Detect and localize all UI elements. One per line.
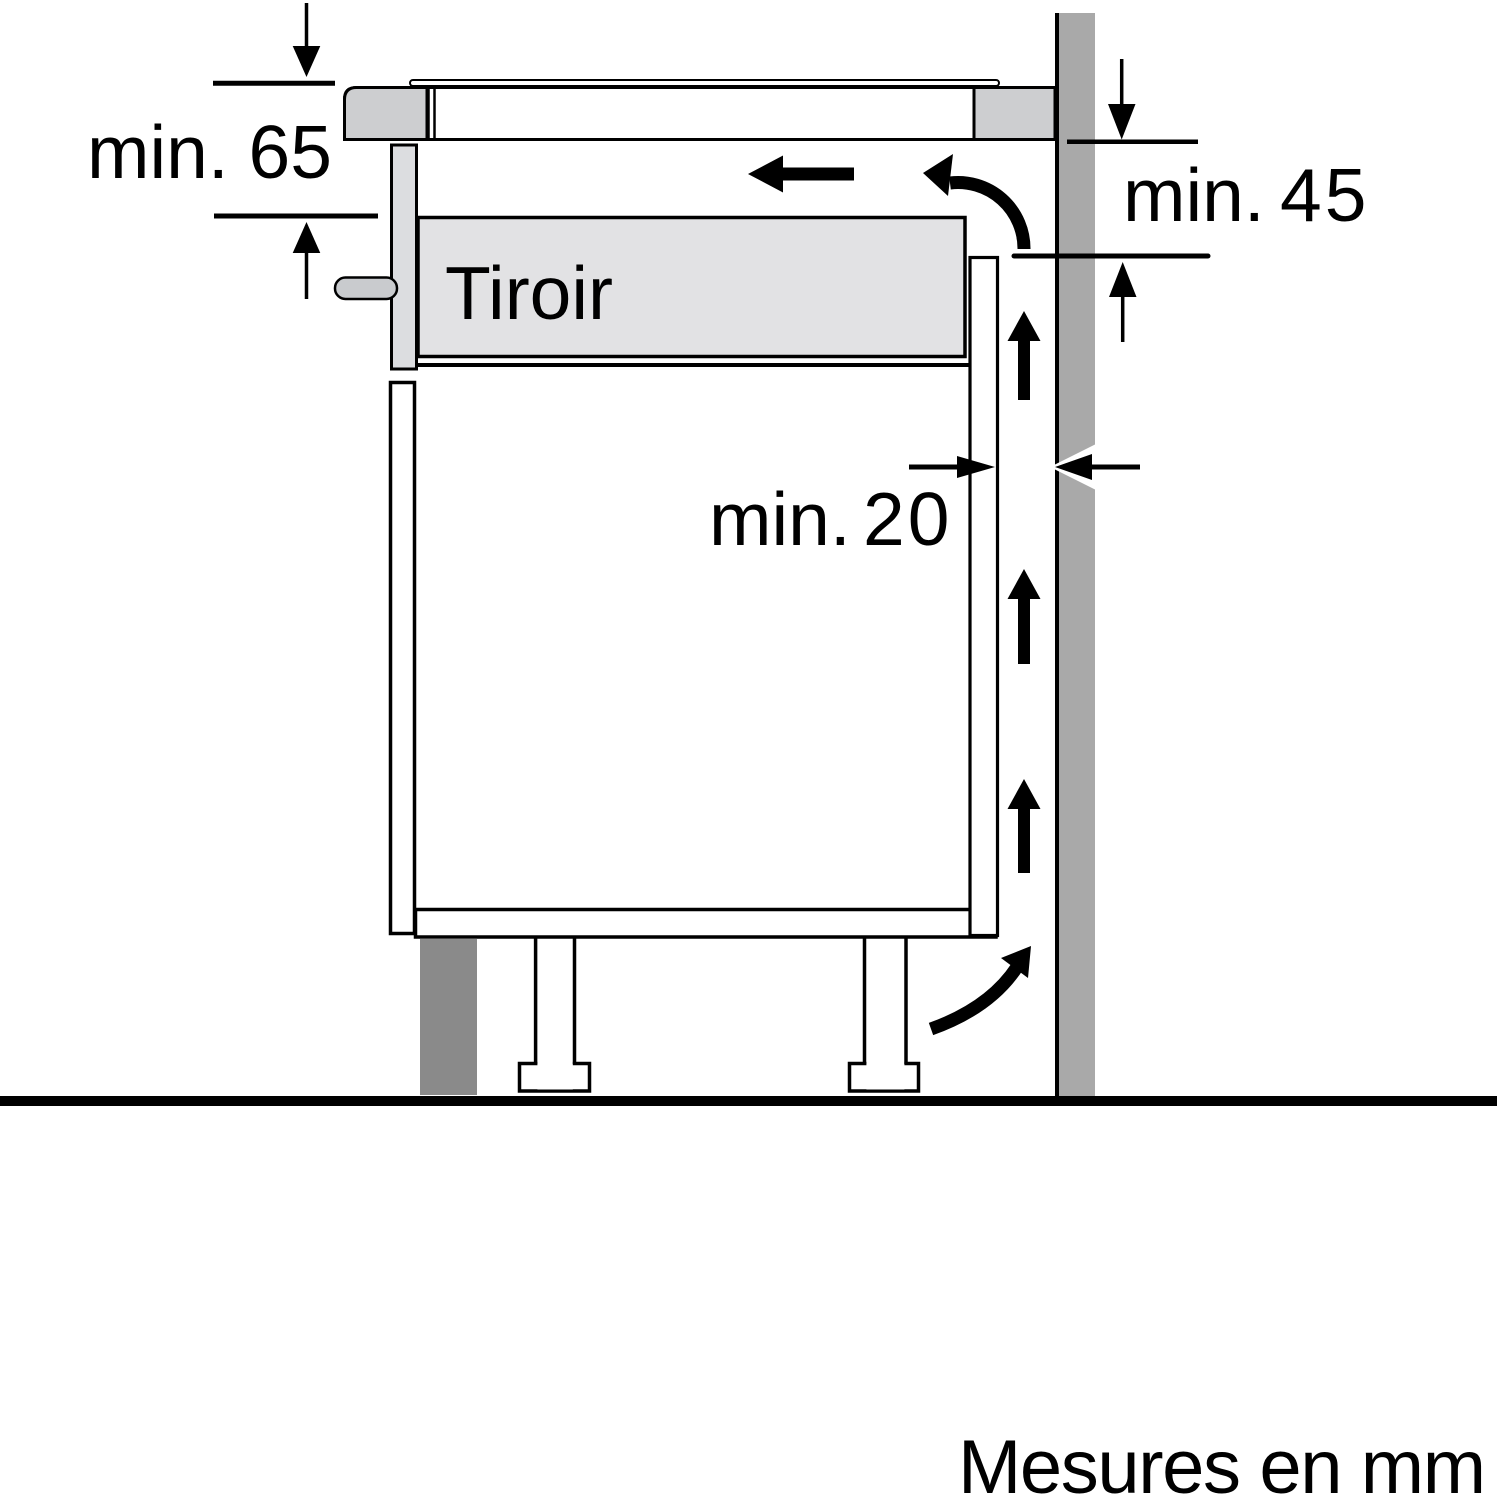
svg-text:65: 65 bbox=[249, 110, 332, 194]
svg-text:Tiroir: Tiroir bbox=[445, 251, 613, 335]
svg-text:Mesures en mm: Mesures en mm bbox=[958, 1425, 1485, 1494]
svg-text:20: 20 bbox=[863, 477, 952, 561]
svg-text:min.: min. bbox=[709, 477, 851, 561]
svg-text:45: 45 bbox=[1280, 153, 1369, 237]
svg-text:min.: min. bbox=[87, 110, 229, 194]
svg-text:min.: min. bbox=[1123, 153, 1265, 237]
